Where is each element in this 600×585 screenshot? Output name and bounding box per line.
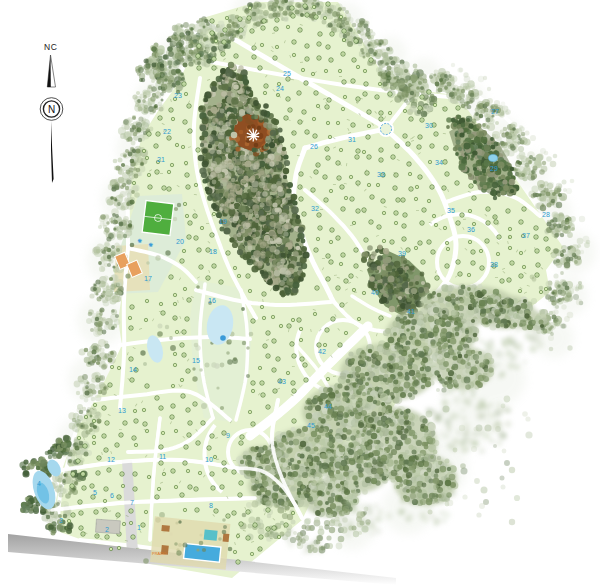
svg-text:4: 4	[37, 480, 41, 487]
svg-text:20: 20	[176, 238, 184, 245]
svg-text:23: 23	[174, 92, 182, 99]
svg-text:10: 10	[205, 456, 213, 463]
svg-text:21: 21	[157, 156, 165, 163]
svg-text:15: 15	[192, 357, 200, 364]
svg-text:17: 17	[144, 275, 152, 282]
svg-text:11: 11	[159, 453, 166, 460]
svg-text:N: N	[48, 104, 55, 115]
svg-text:39: 39	[398, 250, 406, 257]
svg-text:26: 26	[310, 143, 318, 150]
svg-text:✺: ✺	[148, 242, 153, 248]
svg-text:29: 29	[490, 165, 498, 172]
svg-text:24: 24	[276, 85, 284, 92]
svg-text:27: 27	[491, 108, 499, 115]
svg-text:32: 32	[311, 205, 319, 212]
svg-text:18: 18	[209, 248, 217, 255]
svg-text:43: 43	[278, 378, 286, 385]
svg-text:✺: ✺	[137, 238, 142, 244]
svg-text:37: 37	[522, 232, 530, 239]
svg-text:2: 2	[105, 526, 109, 533]
svg-text:30: 30	[425, 122, 433, 129]
svg-text:28: 28	[542, 211, 550, 218]
svg-text:3: 3	[59, 517, 63, 524]
svg-text:PRADO: PRADO	[152, 551, 166, 556]
svg-text:13: 13	[118, 407, 126, 414]
svg-text:38: 38	[490, 261, 498, 268]
svg-text:22: 22	[163, 128, 171, 135]
svg-text:45: 45	[307, 422, 315, 429]
svg-text:42: 42	[318, 348, 326, 355]
svg-text:12: 12	[107, 456, 115, 463]
svg-text:NC: NC	[44, 42, 57, 52]
svg-text:44: 44	[324, 403, 332, 410]
svg-text:33: 33	[377, 171, 385, 178]
svg-text:19: 19	[219, 218, 227, 225]
svg-text:35: 35	[447, 207, 455, 214]
svg-text:40: 40	[371, 289, 379, 296]
svg-text:6: 6	[110, 492, 114, 499]
svg-text:34: 34	[435, 159, 443, 166]
svg-text:8: 8	[209, 502, 213, 509]
svg-text:7: 7	[130, 499, 134, 506]
svg-text:41: 41	[407, 308, 415, 315]
svg-text:14: 14	[129, 366, 137, 373]
svg-text:5: 5	[93, 489, 97, 496]
svg-text:16: 16	[208, 297, 216, 304]
svg-text:31: 31	[348, 136, 356, 143]
svg-text:25: 25	[283, 70, 291, 77]
svg-text:1: 1	[137, 524, 141, 531]
svg-text:36: 36	[467, 226, 475, 233]
svg-text:9: 9	[226, 432, 230, 439]
